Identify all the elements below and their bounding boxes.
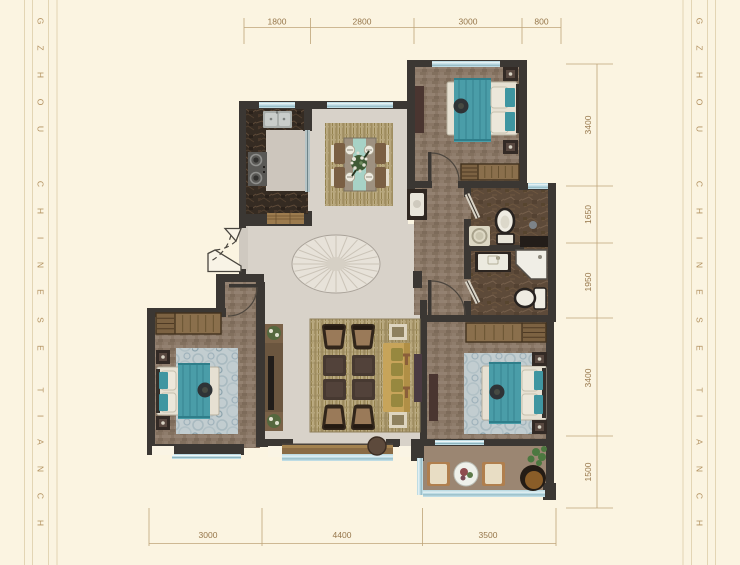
svg-text:H: H <box>695 520 705 526</box>
svg-text:1500: 1500 <box>583 462 593 481</box>
svg-text:I: I <box>695 415 705 417</box>
svg-text:G: G <box>36 18 46 25</box>
svg-text:H: H <box>695 72 705 78</box>
svg-text:1650: 1650 <box>583 205 593 224</box>
svg-text:E: E <box>695 345 705 351</box>
svg-text:H: H <box>695 208 705 214</box>
svg-text:C: C <box>36 181 46 187</box>
svg-text:O: O <box>695 99 705 106</box>
svg-text:O: O <box>36 99 46 106</box>
svg-text:S: S <box>36 317 46 323</box>
svg-text:N: N <box>36 466 46 472</box>
svg-text:I: I <box>695 237 705 239</box>
svg-text:3500: 3500 <box>479 530 498 540</box>
svg-text:U: U <box>695 126 705 132</box>
svg-text:C: C <box>695 181 705 187</box>
svg-text:N: N <box>36 262 46 268</box>
svg-text:800: 800 <box>534 17 548 27</box>
svg-text:3000: 3000 <box>459 17 478 27</box>
svg-text:I: I <box>36 415 46 417</box>
svg-text:3400: 3400 <box>583 115 593 134</box>
svg-text:N: N <box>695 262 705 268</box>
svg-text:E: E <box>695 289 705 295</box>
svg-text:Z: Z <box>695 45 705 50</box>
svg-text:I: I <box>36 237 46 239</box>
svg-text:C: C <box>36 493 46 499</box>
svg-text:3000: 3000 <box>199 530 218 540</box>
svg-text:1950: 1950 <box>583 272 593 291</box>
svg-text:1800: 1800 <box>268 17 287 27</box>
svg-text:T: T <box>695 387 705 392</box>
svg-text:N: N <box>695 466 705 472</box>
svg-text:T: T <box>36 387 46 392</box>
svg-text:H: H <box>36 208 46 214</box>
svg-text:3400: 3400 <box>583 368 593 387</box>
svg-text:Z: Z <box>36 45 46 50</box>
svg-text:U: U <box>36 126 46 132</box>
svg-text:4400: 4400 <box>333 530 352 540</box>
svg-text:2800: 2800 <box>353 17 372 27</box>
svg-text:E: E <box>36 289 46 295</box>
svg-text:H: H <box>36 520 46 526</box>
svg-text:C: C <box>695 493 705 499</box>
svg-text:G: G <box>695 18 705 25</box>
svg-text:A: A <box>695 439 705 445</box>
svg-text:H: H <box>36 72 46 78</box>
svg-text:S: S <box>695 317 705 323</box>
svg-text:E: E <box>36 345 46 351</box>
svg-text:A: A <box>36 439 46 445</box>
